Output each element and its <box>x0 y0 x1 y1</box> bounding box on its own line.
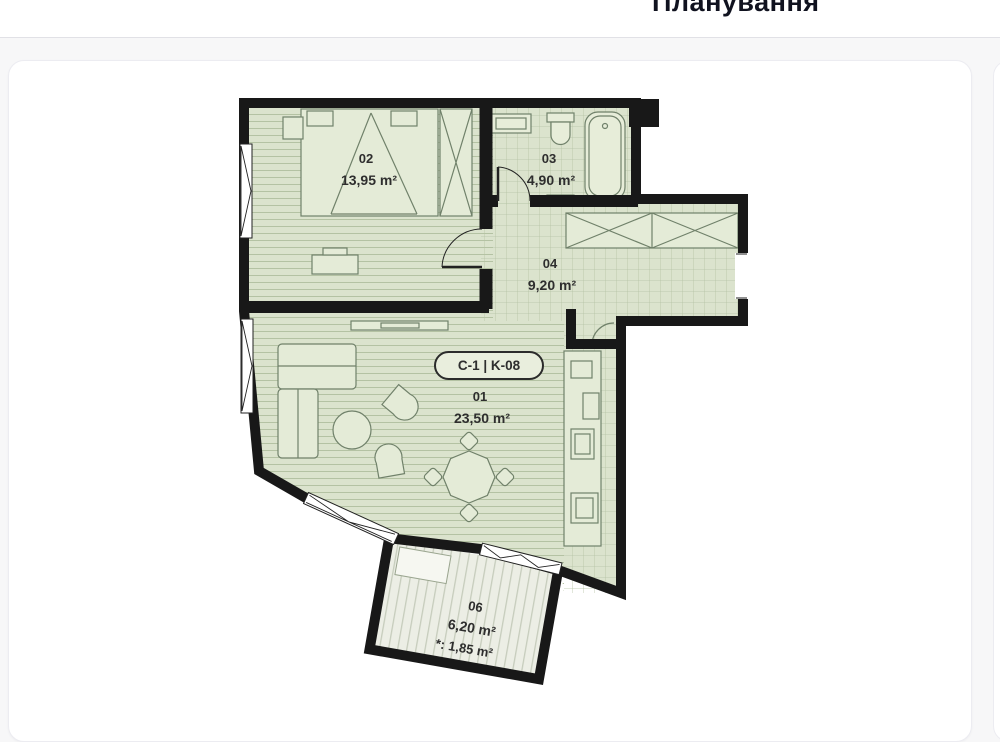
room-id-04: 04 <box>543 256 558 271</box>
floorplan-svg: 06 6,20 m² *: 1,85 m² <box>231 93 751 693</box>
bedroom-wardrobe <box>440 109 472 216</box>
page-title: Планування <box>652 0 820 18</box>
bathtub <box>585 112 625 200</box>
unit-badge-label: C-1 | K-08 <box>458 358 521 373</box>
unit-badge: C-1 | K-08 <box>435 352 543 379</box>
dresser <box>312 255 358 274</box>
hallway-wardrobe <box>566 213 738 248</box>
room-area-01: 23,50 m² <box>454 410 510 426</box>
room-area-02: 13,95 m² <box>341 172 397 188</box>
floorplan-card[interactable]: 06 6,20 m² *: 1,85 m² <box>8 60 972 742</box>
window <box>241 319 253 413</box>
room-id-02: 02 <box>359 151 373 166</box>
page-header: Планування <box>0 0 1000 38</box>
room-area-04: 9,20 m² <box>528 277 577 293</box>
next-floorplan-card[interactable] <box>993 60 1000 742</box>
room-id-01: 01 <box>473 389 487 404</box>
wall-pillar <box>629 99 659 127</box>
floorplan-image: 06 6,20 m² *: 1,85 m² <box>231 93 751 693</box>
room-id-03: 03 <box>542 151 556 166</box>
room-id-06: 06 <box>467 598 484 615</box>
coffee-table <box>333 411 371 449</box>
window <box>240 144 252 238</box>
entrance-opening <box>735 253 748 299</box>
kitchen-counter <box>564 351 601 546</box>
room-area-03: 4,90 m² <box>527 172 576 188</box>
nightstand <box>283 117 303 139</box>
